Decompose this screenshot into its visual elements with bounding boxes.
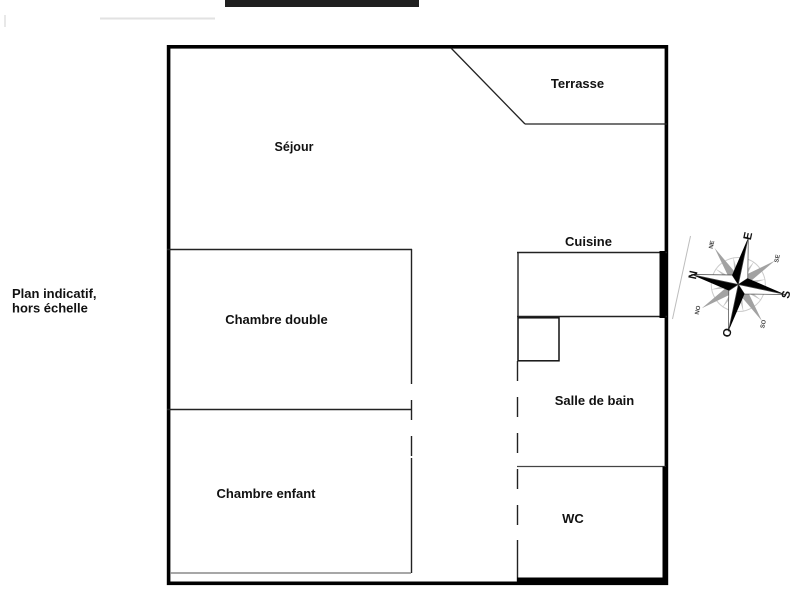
svg-text:Plan indicatif,: Plan indicatif, <box>12 286 97 301</box>
svg-text:Salle de bain: Salle de bain <box>555 393 635 408</box>
svg-text:Chambre enfant: Chambre enfant <box>217 486 317 501</box>
svg-text:WC: WC <box>562 511 584 526</box>
svg-text:Chambre double: Chambre double <box>225 312 328 327</box>
svg-text:hors échelle: hors échelle <box>12 301 88 316</box>
svg-text:Cuisine: Cuisine <box>565 234 612 249</box>
svg-text:Terrasse: Terrasse <box>551 76 604 91</box>
svg-text:Séjour: Séjour <box>275 140 314 154</box>
